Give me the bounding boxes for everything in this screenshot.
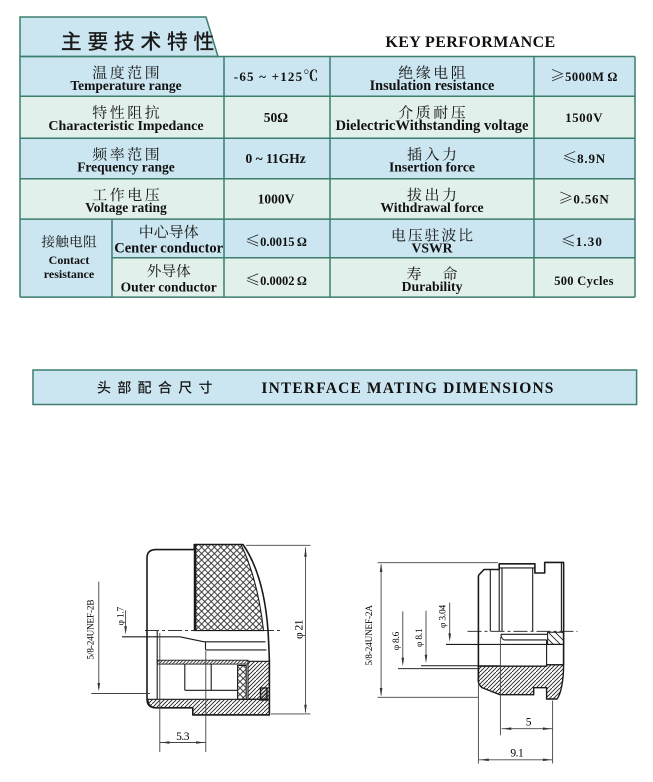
svg-text:5000M: 5000M	[565, 70, 604, 84]
svg-text:VSWR: VSWR	[411, 241, 452, 256]
svg-text:KEY PERFORMANCE: KEY PERFORMANCE	[385, 34, 555, 51]
svg-text:-65 ~ +125: -65 ~ +125	[234, 69, 303, 84]
svg-text:50Ω: 50Ω	[264, 110, 289, 125]
svg-text:0.0002: 0.0002	[260, 274, 294, 288]
svg-text:0 ~ 11GHz: 0 ~ 11GHz	[246, 151, 306, 166]
svg-text:Temperature range: Temperature range	[70, 78, 181, 93]
svg-text:Center conductor: Center conductor	[114, 240, 223, 256]
svg-text:DielectricWithstanding voltage: DielectricWithstanding voltage	[335, 118, 529, 134]
svg-text:5: 5	[526, 717, 532, 729]
svg-text:Ω: Ω	[604, 70, 618, 84]
svg-text:φ 21: φ 21	[294, 619, 306, 639]
svg-text:Ω: Ω	[294, 235, 307, 249]
svg-text:Frequency range: Frequency range	[77, 160, 175, 175]
svg-text:resistance: resistance	[44, 267, 95, 281]
svg-text:500 Cycles: 500 Cycles	[554, 274, 614, 288]
svg-text:φ 8.1: φ 8.1	[415, 628, 425, 647]
svg-text:5/8-24UNEF-2B: 5/8-24UNEF-2B	[86, 600, 96, 660]
svg-text:Characteristic Impedance: Characteristic Impedance	[48, 119, 203, 134]
svg-text:Insertion force: Insertion force	[389, 160, 475, 175]
svg-text:5/8-24UNEF-2A: 5/8-24UNEF-2A	[364, 605, 374, 666]
svg-text:φ 3.04: φ 3.04	[439, 605, 449, 628]
svg-text:Insulation resistance: Insulation resistance	[370, 78, 495, 94]
svg-text:1.30: 1.30	[576, 234, 603, 249]
svg-text:Voltage rating: Voltage rating	[85, 200, 167, 215]
svg-text:0.56N: 0.56N	[573, 191, 609, 206]
svg-text:0.0015: 0.0015	[260, 235, 294, 249]
svg-text:9.1: 9.1	[510, 748, 524, 760]
svg-text:Contact: Contact	[49, 253, 90, 267]
svg-text:Ω: Ω	[294, 274, 307, 288]
svg-text:Withdrawal force: Withdrawal force	[380, 200, 483, 215]
svg-text:5.3: 5.3	[176, 731, 190, 743]
svg-text:1000V: 1000V	[258, 191, 295, 206]
svg-text:Durability: Durability	[402, 279, 463, 294]
svg-text:Outer conductor: Outer conductor	[121, 279, 217, 294]
svg-text:INTERFACE MATING DIMENSIONS: INTERFACE MATING DIMENSIONS	[261, 380, 554, 397]
svg-text:φ 1.7: φ 1.7	[116, 607, 126, 626]
svg-text:1500V: 1500V	[565, 110, 603, 125]
svg-text:φ 8.6: φ 8.6	[392, 631, 402, 650]
svg-text:8.9N: 8.9N	[577, 151, 606, 166]
